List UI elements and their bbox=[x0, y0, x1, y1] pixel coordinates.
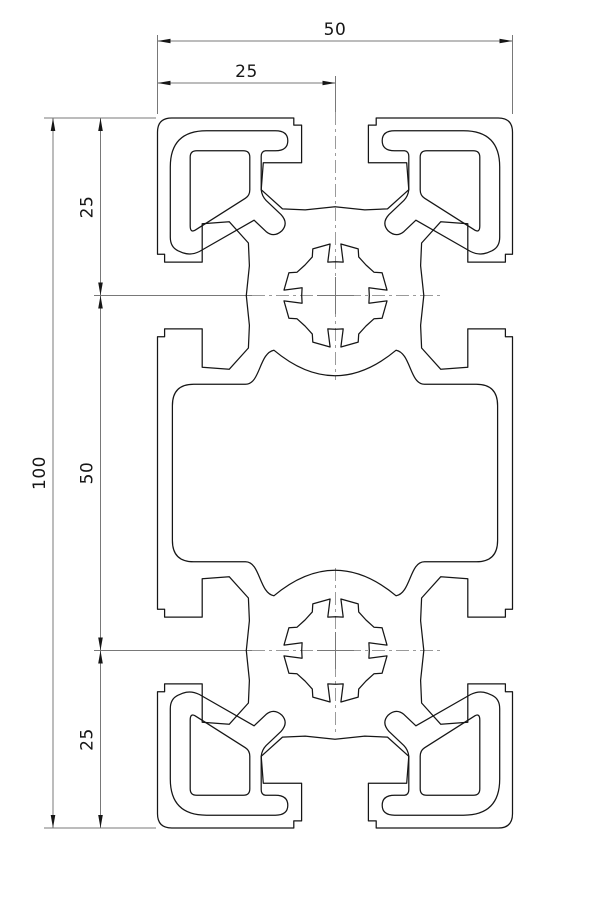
arrow-left25bot-bottom bbox=[98, 815, 103, 828]
arrow-100-top bbox=[51, 118, 56, 131]
arrow-100-bottom bbox=[51, 815, 56, 828]
dim-label-left-25-bottom: 25 bbox=[78, 728, 98, 751]
corner-chamber-top-left bbox=[170, 131, 287, 254]
arrow-top50-left bbox=[158, 39, 171, 44]
arrow-top50-right bbox=[500, 39, 513, 44]
dim-label-left-100: 100 bbox=[30, 456, 50, 490]
technical-drawing: 50 25 100 25 50 25 bbox=[0, 0, 612, 898]
dim-label-top-25: 25 bbox=[235, 62, 258, 82]
dim-label-top-50: 50 bbox=[324, 20, 347, 40]
arrow-left25bot-top bbox=[98, 651, 103, 664]
center-lines bbox=[252, 112, 442, 732]
arrow-left25top-bottom bbox=[98, 283, 103, 296]
extension-lines bbox=[44, 35, 513, 828]
arrow-left50-top bbox=[98, 296, 103, 309]
arrow-left50-bottom bbox=[98, 638, 103, 651]
corner-chamber-top-right bbox=[382, 131, 500, 254]
dim-label-left-25-top: 25 bbox=[78, 196, 98, 219]
corner-chamber-bottom-left bbox=[170, 692, 287, 815]
dim-label-left-50: 50 bbox=[78, 462, 98, 485]
corner-chamber-bottom-right bbox=[382, 692, 500, 815]
central-cavity bbox=[172, 350, 497, 596]
arrow-top25-right bbox=[323, 81, 336, 86]
dimension-labels: 50 25 100 25 50 25 bbox=[30, 20, 346, 751]
arrow-top25-left bbox=[158, 81, 171, 86]
arrow-left25top-top bbox=[98, 118, 103, 131]
drawing-canvas: 50 25 100 25 50 25 bbox=[0, 0, 612, 898]
